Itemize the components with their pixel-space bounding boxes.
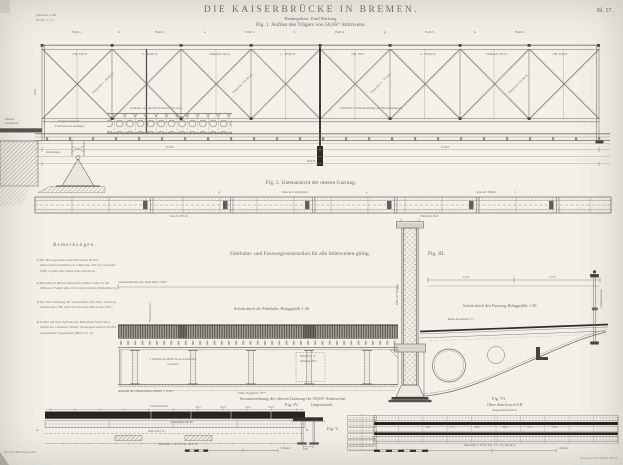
member-label: 2 Bl. 250.10. bbox=[552, 53, 568, 56]
fig1-deck bbox=[35, 134, 610, 144]
fig2-letter: f. bbox=[514, 191, 516, 194]
fig4-sub-label: Längenansicht. bbox=[311, 404, 333, 408]
panel-label: f. bbox=[294, 31, 296, 34]
panel-label: g. bbox=[384, 31, 387, 34]
fig5-chord-section bbox=[291, 414, 377, 451]
fig5-dimension: 0,30 bbox=[303, 449, 308, 452]
imprint-right: Verlag von Carl Beelitz, Berlin. bbox=[580, 457, 618, 460]
fig6-tick: 27,5 bbox=[528, 427, 533, 430]
note-number: 4) bbox=[36, 320, 39, 324]
note-item: 1) Die durchgehends unterstrichenen Brut… bbox=[36, 258, 117, 274]
cut-label-line2: Fahrbahn am Auflager. bbox=[55, 125, 85, 128]
fig2-letter: d. bbox=[218, 191, 220, 194]
fig3-road-section-label: Schnitt durch die Fahrbahn, Belaggefälle… bbox=[234, 307, 310, 311]
member-label: Stehblech 250.12. bbox=[209, 53, 231, 56]
panel-label: Feld 5. bbox=[425, 31, 434, 34]
corner-note-line2: für Fig. 1 u. 2. bbox=[36, 19, 54, 22]
fig4-tick: 23,5 bbox=[245, 406, 250, 409]
fig2-bottom-label-1: Lasche 250.10. bbox=[170, 215, 188, 218]
stoss-caption: Stossanordnung der oberen Gurtung für 50… bbox=[240, 397, 346, 402]
fig4-view-label: Untenansicht. bbox=[150, 405, 169, 408]
fig6-scale-label: Maasstab 1:10 für Fig. V u. VI, Detail A… bbox=[464, 444, 516, 447]
fig1-caption: Fig. 1. Aufriss des Trägers von 50,65ᵐ S… bbox=[256, 23, 366, 29]
fig1-truss-elevation bbox=[41, 44, 604, 166]
panel-label: Feld 1. bbox=[72, 31, 81, 34]
railing-label: Geländer aus durchbrochenem Zierwerk. bbox=[130, 107, 183, 110]
cut-label-line1: Schnitt durch die bbox=[58, 120, 80, 123]
fig3-dim-1: 1,575 bbox=[463, 276, 470, 279]
dimension-right: 25,325 bbox=[441, 146, 449, 149]
fig6-note: Diagonallasche 60.10. bbox=[493, 410, 518, 413]
panel-label: h. bbox=[474, 31, 477, 34]
fig2-caption: Fig. 2. Untenansicht der oberen Gurtung. bbox=[266, 181, 356, 187]
fig1-abutment bbox=[0, 128, 105, 207]
bearing-label: Stelzenlager. bbox=[46, 151, 61, 154]
note-number: 1) bbox=[36, 258, 39, 262]
fig4-tick: 23,5 bbox=[220, 406, 225, 409]
fig2-top-label-2: Stoss der Winkel. bbox=[476, 191, 497, 194]
fig4-tick: 23,5 bbox=[195, 406, 200, 409]
fig6-tick: 26,5 bbox=[553, 427, 558, 430]
panel-label: Feld 6. bbox=[515, 31, 524, 34]
note-item: 3) Die Durchbildung der Gurtplatten: die… bbox=[36, 300, 117, 311]
fig3-girder-note: 2 Winkeleisen 80.80.10 als Aussteifung v… bbox=[146, 357, 200, 366]
fig3-rivet-note-2: Theilung 100ᵐᵐ bbox=[300, 361, 318, 364]
note-text: Sämmtliche Bleche desselben Feldes haben… bbox=[40, 281, 117, 290]
fig6-scale-bar bbox=[374, 449, 556, 453]
note-number: 2) bbox=[36, 281, 39, 285]
panel-label: Feld 4. bbox=[335, 31, 344, 34]
fig3-caption: Fahrbahn- und Fusswegconstruction für al… bbox=[230, 252, 370, 258]
fig5-strip-stack bbox=[348, 414, 377, 451]
fig5-label: Fig. V. bbox=[327, 427, 339, 432]
fig3-plank-label: Bohlenbelag 8ᶜᵐ. bbox=[149, 302, 152, 322]
fig3-dim-2: 1,575 bbox=[549, 276, 556, 279]
fig4-scale-bar bbox=[185, 449, 278, 453]
fig6-tick: 26,5 bbox=[426, 427, 431, 430]
note-item: 2) Sämmtliche Bleche desselben Feldes ha… bbox=[36, 281, 117, 292]
fig2-bottom-label-2: Flachstab 60.8. bbox=[420, 215, 439, 218]
fig3-rivet-note-1: Niete 20ᵐᵐ ∅ bbox=[300, 356, 315, 359]
member-label: 2 Bl. 250.7. bbox=[351, 53, 365, 56]
paper-blemishes bbox=[0, 0, 10, 465]
note-text: Die Durchbildung der Gurtplatten: die ob… bbox=[40, 300, 116, 309]
note-text: Felder mit dem Zeichen der Mittellinie b… bbox=[40, 320, 117, 335]
plate-title: DIE KAISERBRÜCKE IN BREMEN. bbox=[0, 6, 623, 16]
panel-label: d. bbox=[118, 31, 121, 34]
fig2-letter: c. bbox=[70, 191, 72, 194]
fig3-foot-plank-label: Belag aus Bohlen 5ᶜᵐ. bbox=[448, 318, 474, 321]
fig2-letter: e. bbox=[366, 191, 368, 194]
fig3-spacing-label: Abstand der Hauptträger-Mitten = 6,50ᵐ. bbox=[118, 390, 174, 393]
fig3-footway-bracket bbox=[420, 270, 608, 396]
fig2-top-label-1: Stoss der Gurtplatten. bbox=[282, 191, 308, 194]
sheet-number: Bl. 57. bbox=[597, 8, 613, 14]
member-label: 2 ⌐ 80.80.10. bbox=[280, 53, 296, 56]
note-text: Die durchgehends unterstrichenen Brutto-… bbox=[40, 258, 116, 273]
fig1-ornamental-railing bbox=[107, 114, 232, 134]
note-number: 3) bbox=[36, 300, 39, 304]
fig3-centre-column bbox=[389, 218, 432, 402]
deck-label: Fahrbahn mit Bohlenbelag und Pferdebahng… bbox=[340, 107, 402, 110]
fig4-mark-b: B. bbox=[306, 429, 309, 432]
fig4-tick: 23,5 bbox=[268, 406, 273, 409]
panel-label: e. bbox=[204, 31, 206, 34]
fig6-tick: 28,5 bbox=[503, 427, 508, 430]
fig4-mark-a: A. bbox=[36, 429, 39, 432]
fig6-sub-label: Obere Ansicht nach A-B. bbox=[487, 404, 523, 408]
fig4-band-label: 2 Lamellen 250.10. bbox=[170, 421, 193, 424]
panel-label: Feld 2. bbox=[155, 31, 164, 34]
fig2-chord-strip bbox=[35, 197, 611, 213]
corner-note-line1: Maasstab 1:100 bbox=[36, 14, 56, 17]
fig4-scale-meter: 1 Meter. bbox=[280, 447, 291, 450]
note-item: 4) Felder mit dem Zeichen der Mittellini… bbox=[36, 320, 117, 336]
fig6-splice-plan bbox=[374, 416, 618, 453]
fig3-rail-label: Geländerpfosten. bbox=[601, 289, 604, 308]
fig6-tick: 28,5 bbox=[475, 427, 480, 430]
member-label: 2 Bl. 250.10. bbox=[72, 53, 88, 56]
panel-label: Feld 3. bbox=[245, 31, 254, 34]
plate-subtitle: Bauinspektor: Emil Bücking. bbox=[285, 17, 338, 22]
fig3-foot-section-label: Schnitt durch den Fussweg, Belaggefälle … bbox=[463, 304, 538, 308]
fig3-plate-label: Volle Tiefplatte 10ᵐᵐ. bbox=[238, 392, 266, 395]
height-dimension: 4,50ᵐ bbox=[34, 88, 37, 95]
fig6-tick: 27,5 bbox=[450, 427, 455, 430]
notes-heading: Bemerkungen. bbox=[40, 243, 110, 248]
fig3-width-dimension: Gesammtbreite der Fahrbahn 5,00ᵐ. bbox=[118, 281, 167, 284]
street-label-2: Granitbord. bbox=[5, 122, 19, 125]
fig6-label: Fig. VI. bbox=[492, 397, 506, 402]
fig4-chord-plan bbox=[45, 410, 305, 453]
fig3-label: Fig. III. bbox=[428, 252, 445, 258]
dimension-total: 50,650 bbox=[307, 160, 316, 163]
member-label: Stehblech 250.12. bbox=[486, 53, 508, 56]
fig4-scale-label: Maasstab 1:10 für Fig. III u. IV. bbox=[158, 443, 199, 446]
fig3-roadway-section bbox=[118, 285, 398, 391]
engraving-plate: DIE KAISERBRÜCKE IN BREMEN. Bauinspektor… bbox=[0, 0, 623, 465]
imprint-left: Deutsche Bauzeitung 1876. bbox=[4, 451, 37, 454]
fig4-center-label: Niete 23ᵐᵐ ∅. bbox=[148, 430, 165, 433]
fig3-mid-label: Mitte der Brücke. bbox=[396, 284, 399, 305]
member-label: 4 ⌐ 90.90.10. bbox=[420, 53, 436, 56]
dimension-left: 25,325 bbox=[166, 146, 174, 149]
fig4-label: Fig. IV. bbox=[285, 403, 299, 408]
member-label: 4 ⌐ 90.90.10. bbox=[142, 53, 158, 56]
fig6-scale-meter: 1 Meter. bbox=[558, 447, 569, 450]
